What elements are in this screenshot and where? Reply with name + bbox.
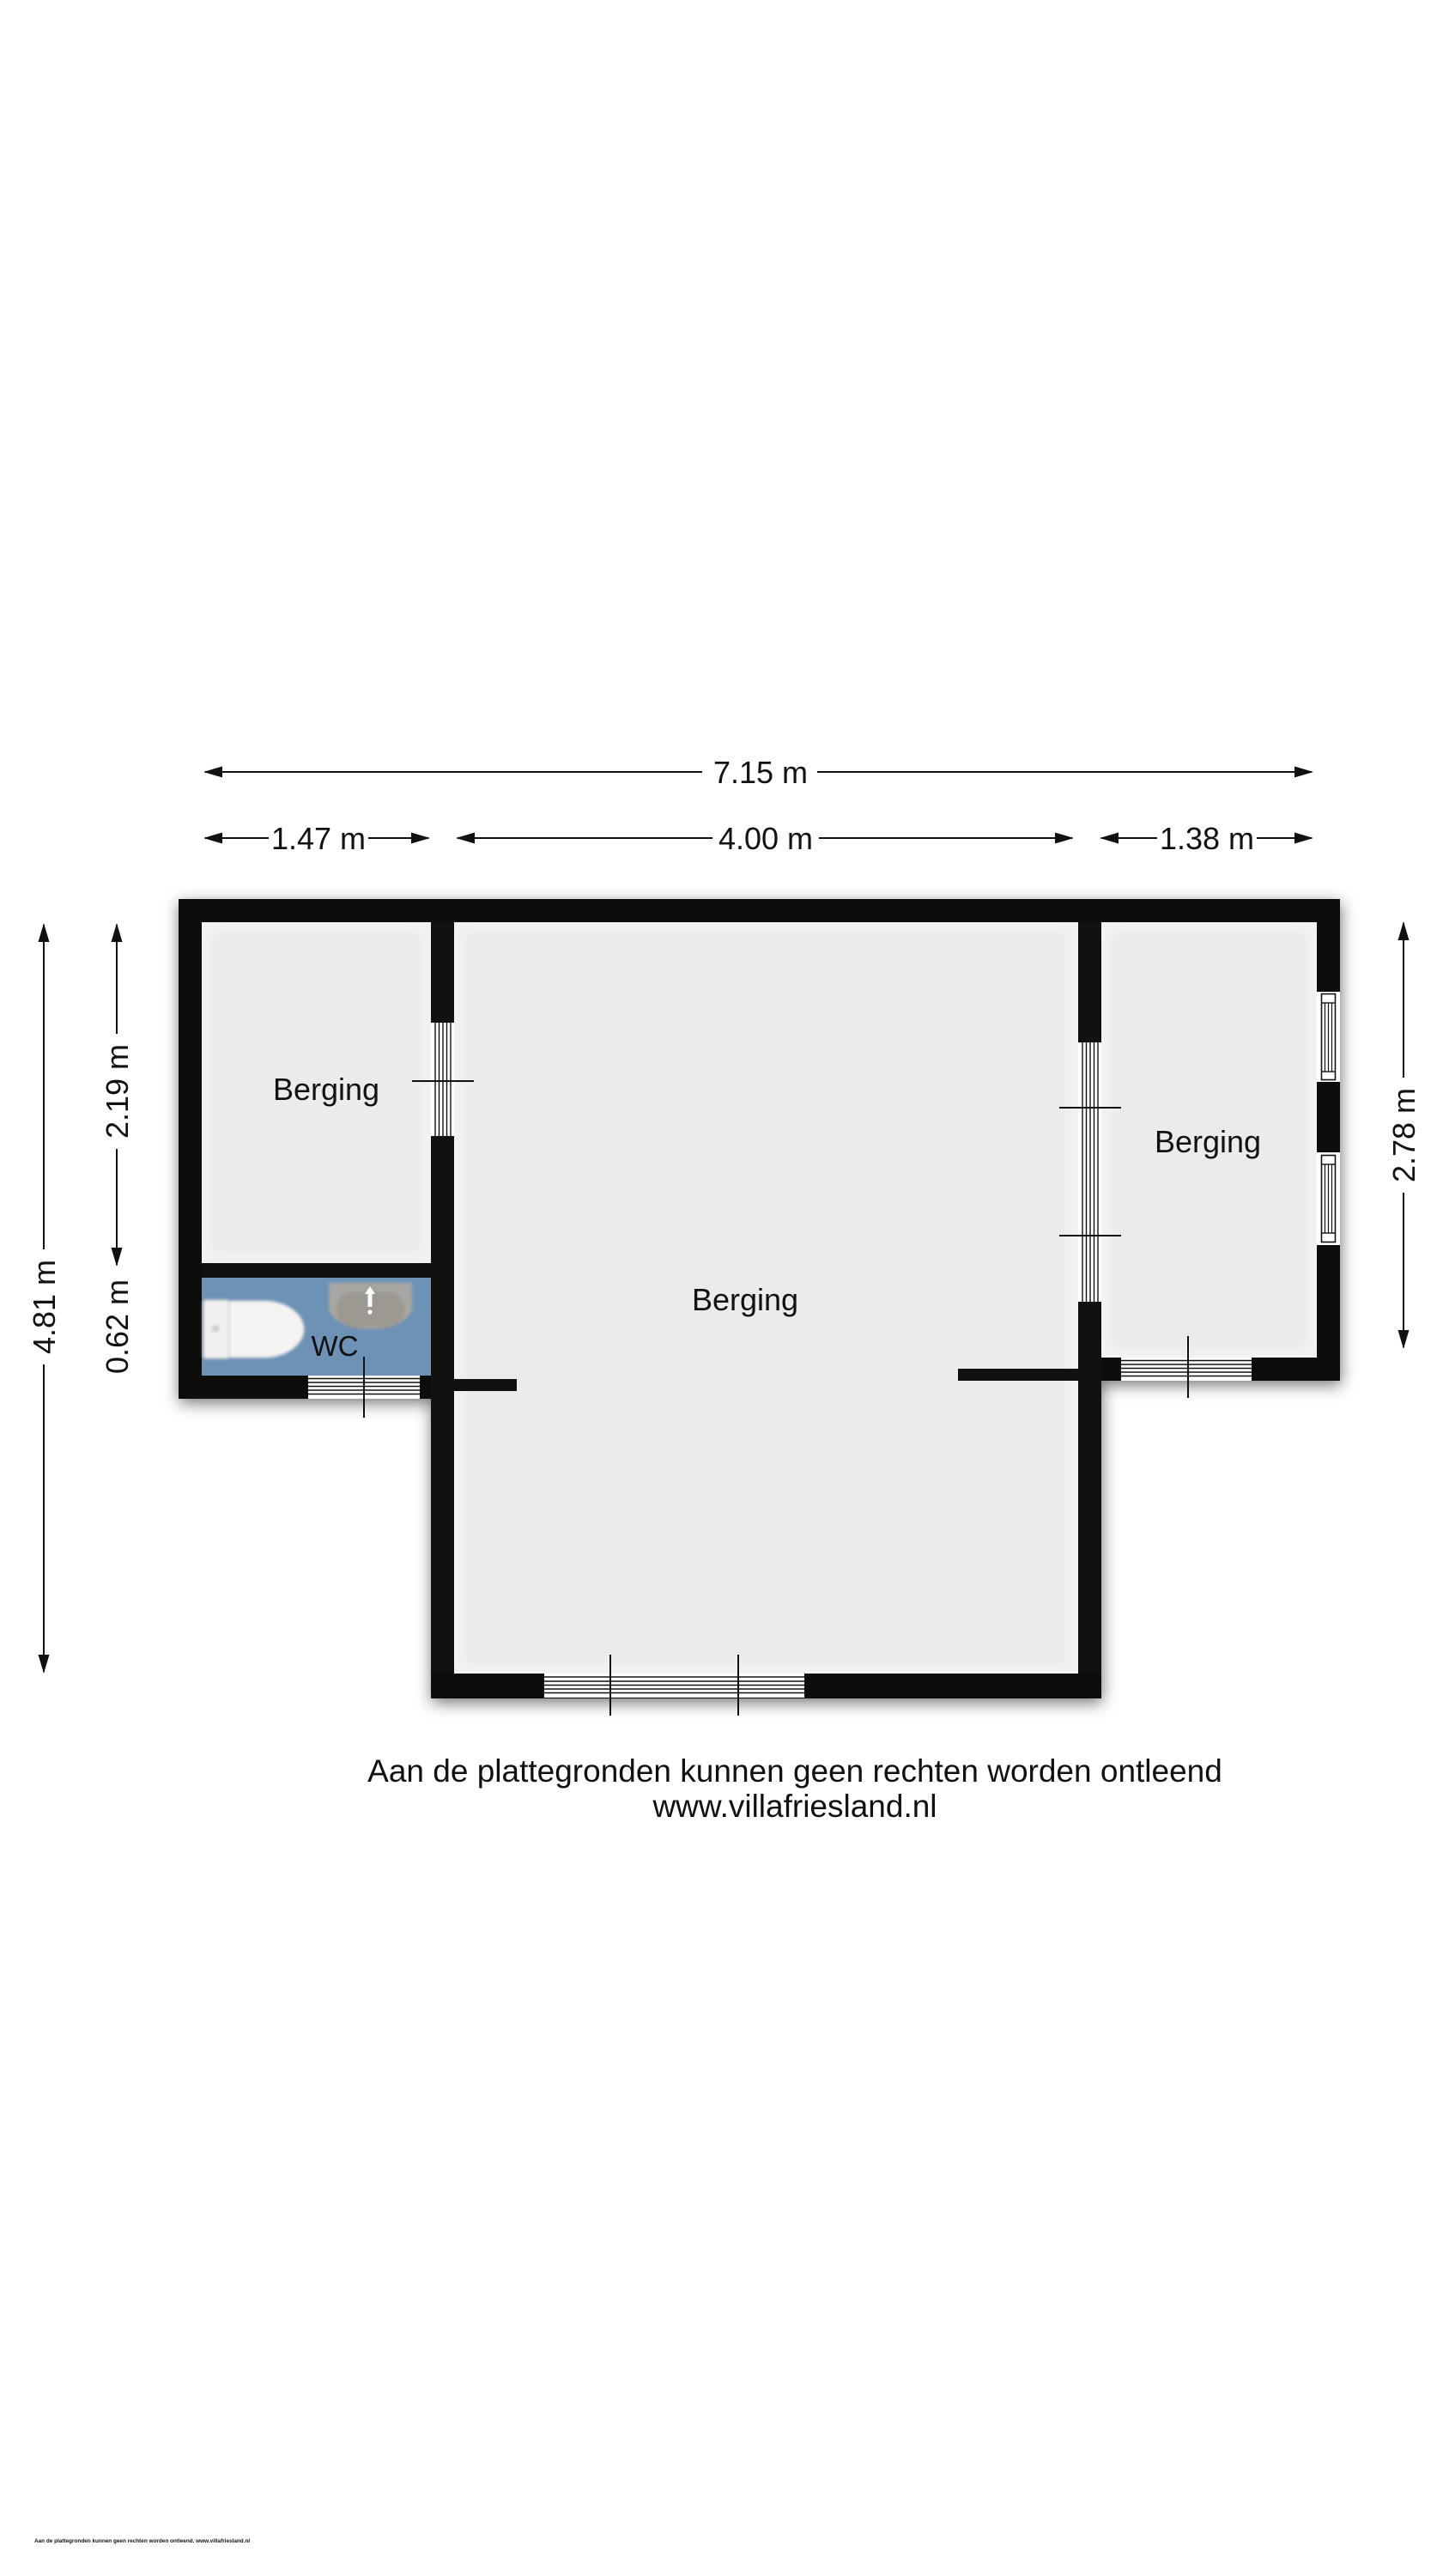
svg-text:2.78 m: 2.78 m (1386, 1088, 1422, 1182)
svg-text:7.15 m: 7.15 m (713, 755, 808, 790)
svg-text:WC: WC (312, 1330, 359, 1362)
svg-text:1.38 m: 1.38 m (1160, 821, 1254, 856)
svg-text:4.81 m: 4.81 m (27, 1260, 62, 1354)
svg-text:2.19 m: 2.19 m (100, 1044, 135, 1139)
svg-text:4.00 m: 4.00 m (718, 821, 813, 856)
svg-text:Berging: Berging (1155, 1124, 1261, 1159)
svg-text:0.62 m: 0.62 m (100, 1279, 135, 1374)
svg-text:Aan de plattegronden kunnen ge: Aan de plattegronden kunnen geen rechten… (34, 2538, 250, 2544)
svg-text:Berging: Berging (273, 1072, 379, 1107)
svg-text:1.47 m: 1.47 m (271, 821, 366, 856)
svg-text:www.villafriesland.nl: www.villafriesland.nl (652, 1789, 937, 1824)
svg-text:Aan de plattegronden kunnen ge: Aan de plattegronden kunnen geen rechten… (367, 1753, 1222, 1789)
svg-text:Berging: Berging (692, 1282, 798, 1317)
